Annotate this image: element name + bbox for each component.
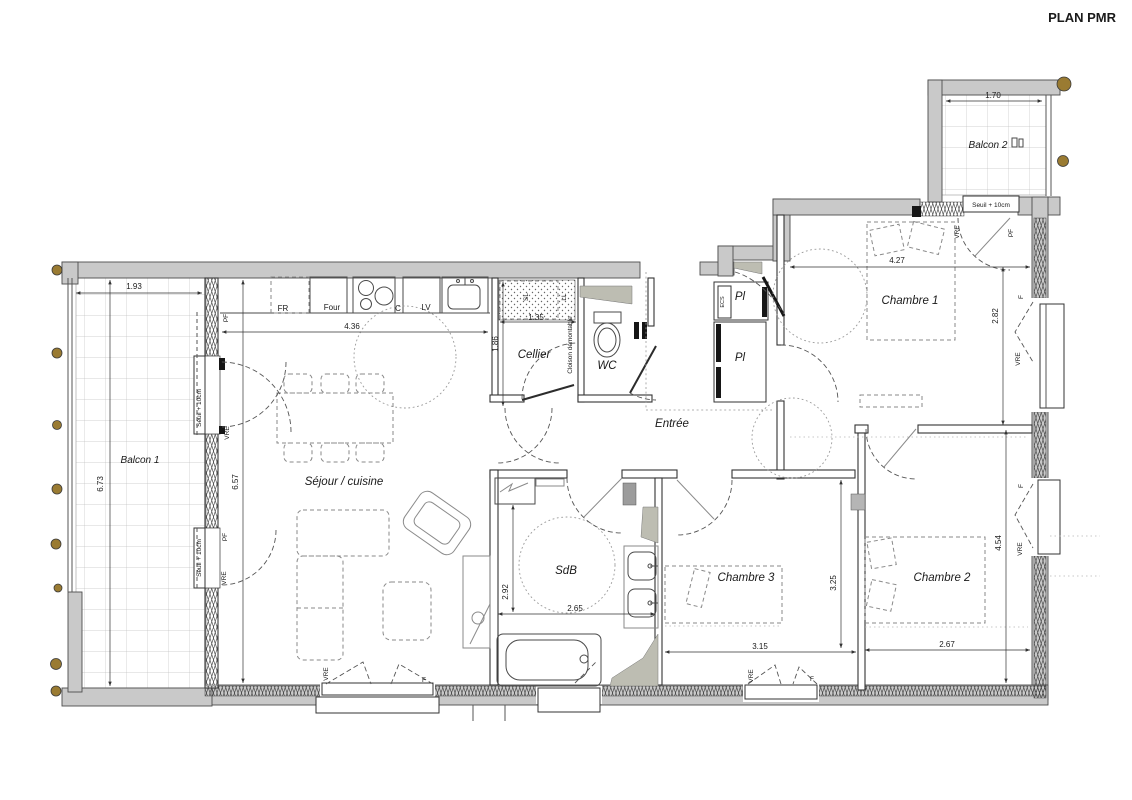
label-vre-chambre1-east: VRE xyxy=(1015,352,1022,366)
dim-sejour-height: 6.57 xyxy=(231,474,240,490)
window-sejour-west xyxy=(203,356,220,434)
window-chambre3-south xyxy=(745,685,817,699)
seuil-label-west2: Seuil + 10cm xyxy=(196,539,203,577)
dim-sdb-height: 2.92 xyxy=(501,584,510,600)
room-label-chambre1: Chambre 1 xyxy=(882,295,939,307)
room-label-balcon2: Balcon 2 xyxy=(969,140,1008,151)
label-f-chambre1-east: F xyxy=(1018,295,1025,299)
plan-title: PLAN PMR xyxy=(1048,10,1117,25)
chambre2-furniture xyxy=(865,429,1100,627)
window-chambre1-east xyxy=(1040,304,1064,408)
room-label-chambre2: Chambre 2 xyxy=(914,572,971,584)
label-fridge: FR xyxy=(278,304,289,313)
label-oven: Four xyxy=(324,303,341,312)
chambre3-furniture xyxy=(665,480,782,626)
floor-plan-page: PLAN PMR Balcon 1 Balcon 2 Séjour / cuis… xyxy=(0,0,1132,800)
room-label-wc: WC xyxy=(597,360,617,372)
bench-chambre1 xyxy=(860,395,922,407)
label-vre-sejour-south: VRE xyxy=(323,667,330,681)
dim-cellier-width: 1.35 xyxy=(528,313,544,322)
dim-sdb-width: 2.65 xyxy=(567,604,583,613)
sdb-fixtures xyxy=(495,478,658,686)
chambre1-furniture xyxy=(773,218,1033,437)
dim-balcon2-width: 1.70 xyxy=(985,91,1001,100)
cooktop xyxy=(353,277,395,313)
label-washer: SL xyxy=(523,293,530,301)
room-label-sejour: Séjour / cuisine xyxy=(305,476,384,488)
label-f-chambre3-south: F xyxy=(810,676,814,683)
window-chambre2-east xyxy=(1038,480,1060,554)
turning-circle-hall xyxy=(752,398,832,478)
turning-circle-chambre1 xyxy=(773,249,867,343)
room-label-sdb: SdB xyxy=(555,565,577,577)
label-f-sejour-south: F xyxy=(422,677,426,684)
label-dishwasher: LV xyxy=(421,303,431,312)
dim-balcon1-height: 6.73 xyxy=(96,476,105,492)
label-pf-west-top: PF xyxy=(223,314,230,322)
dim-chambre2-width: 2.67 xyxy=(939,640,955,649)
label-vre-chambre3-south: VRE xyxy=(748,669,755,683)
label-vre-west1: VRE xyxy=(224,426,231,440)
room-label-chambre3: Chambre 3 xyxy=(718,572,775,584)
room-label-balcon1: Balcon 1 xyxy=(121,455,160,466)
dim-chambre3-width: 3.15 xyxy=(752,642,768,651)
door-sejour-west xyxy=(203,528,220,588)
label-pf-chambre1: PF xyxy=(1008,229,1015,237)
label-cooktop: C xyxy=(395,304,401,313)
dimension-lines xyxy=(76,101,1042,721)
dim-chambre3-height: 3.25 xyxy=(829,575,838,591)
label-vre-chambre1-north: VRE xyxy=(954,225,961,239)
label-vre-chambre2-east: VRE xyxy=(1017,542,1024,556)
room-label-pl-top: Pl xyxy=(735,291,746,303)
cloison-label: Cloison démontable xyxy=(567,316,574,374)
toilet xyxy=(594,312,621,323)
dim-chambre2-height: 4.54 xyxy=(994,535,1003,551)
kitchen-counter xyxy=(220,277,490,313)
duct-block xyxy=(623,483,636,505)
balcony-floors xyxy=(76,95,1046,688)
dim-chambre1-width: 4.27 xyxy=(889,256,905,265)
dim-cellier-height: 1.86 xyxy=(491,336,500,352)
desk xyxy=(463,556,490,648)
room-label-cellier: Cellier xyxy=(518,349,552,361)
label-pf-west2: PF xyxy=(222,533,229,541)
window-sdb-south xyxy=(538,688,600,712)
armchair xyxy=(400,488,474,558)
sofa xyxy=(297,510,389,556)
window-opening-symbols xyxy=(326,662,817,684)
room-label-entree: Entrée xyxy=(655,418,689,430)
seuil-label-balcon2: Seuil + 10cm xyxy=(972,202,1010,209)
floor-plan-canvas: PLAN PMR Balcon 1 Balcon 2 Séjour / cuis… xyxy=(0,0,1132,800)
label-vre-west2: VRE xyxy=(221,571,228,585)
room-label-pl-bottom: Pl xyxy=(735,352,746,364)
dim-kitchen-width: 4.36 xyxy=(344,322,360,331)
label-ecs: ECS xyxy=(720,296,726,308)
dim-chambre1-height: 2.82 xyxy=(991,308,1000,324)
coffee-table xyxy=(383,582,431,640)
window-sejour-south xyxy=(322,683,433,695)
dining-table xyxy=(277,393,393,443)
label-f-chambre2-east: F xyxy=(1018,484,1025,488)
duct-block-2 xyxy=(851,494,865,510)
seuil-label-west1: Seuil + 10cm xyxy=(196,389,203,427)
label-dryer: LL xyxy=(561,293,568,301)
dim-balcon1-width: 1.93 xyxy=(126,282,142,291)
